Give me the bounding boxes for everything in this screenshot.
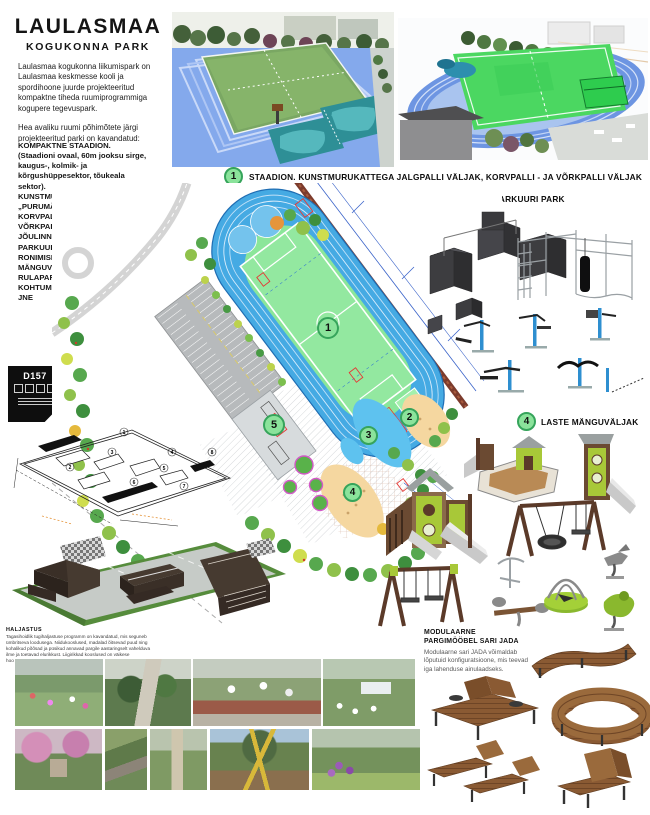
callout-1-label: STAADION. KUNSTMURUKATTEGA JALGPALLI VÄL… (249, 172, 647, 182)
plan-marker-5: 5 (263, 414, 285, 436)
photo-meadow-flowers (14, 658, 104, 727)
title-block: LAULASMAA KOGUKONNA PARK (12, 16, 164, 53)
callout-4-label: LASTE MÄNGUVÄLJAK (541, 417, 650, 427)
skatepark-render (8, 526, 290, 628)
photo-playground-hammock (209, 728, 310, 791)
skatepark-badge-icons (14, 384, 56, 393)
skatepark-badge-lines (18, 396, 52, 407)
skatepark-plan-drawing: 1 2 3 4 5 6 7 8 (12, 424, 238, 528)
svg-text:3: 3 (111, 450, 114, 456)
callout-4-number: 4 (517, 412, 536, 431)
greenery-note-heading: HALJASTUS (6, 627, 158, 633)
park-furniture-renders (420, 636, 650, 814)
feature-item: kõrgushüppesektor, tõukeala (18, 171, 168, 181)
page-title: LAULASMAA (12, 16, 164, 37)
photo-tree-path (104, 658, 192, 727)
photo-terraced-planting (104, 728, 148, 791)
plan-marker-2: 2 (400, 408, 419, 427)
plan-marker-4: 4 (343, 483, 362, 502)
photo-blossom-path (14, 728, 103, 791)
intro-text: Laulasmaa kogukonna liikumispark on Laul… (18, 62, 160, 153)
fitness-equipment-renders (420, 208, 650, 398)
svg-text:4: 4 (171, 450, 174, 456)
feature-item: KOMPAKTNE STAADION. (18, 141, 168, 151)
feature-item: kaugus-, kolmik- ja (18, 161, 168, 171)
page-subtitle: KOGUKONNA PARK (12, 41, 164, 53)
poster-page: { "title": { "line1": "LAULASMAA", "line… (0, 0, 650, 815)
svg-text:8: 8 (211, 450, 214, 456)
feature-item: (Staadioni ovaal, 60m jooksu sirge, (18, 151, 168, 161)
svg-text:5: 5 (163, 466, 166, 472)
photo-gravel-path (149, 728, 208, 791)
svg-text:7: 7 (183, 484, 186, 490)
photo-perennial-garden (311, 728, 421, 791)
photo-red-path-planting (192, 658, 322, 727)
skatepark-code: D157 (23, 371, 47, 381)
playground-equipment-renders (368, 430, 650, 635)
svg-text:6: 6 (133, 480, 136, 486)
plan-marker-1: 1 (317, 317, 339, 339)
intro-paragraph-1: Laulasmaa kogukonna liikumispark on Laul… (18, 62, 160, 114)
svg-text:2: 2 (69, 465, 72, 471)
stadium-render-left (172, 12, 394, 167)
stadium-render-right (398, 18, 648, 160)
svg-text:1: 1 (123, 430, 126, 436)
photo-bench-daisies (322, 658, 416, 727)
